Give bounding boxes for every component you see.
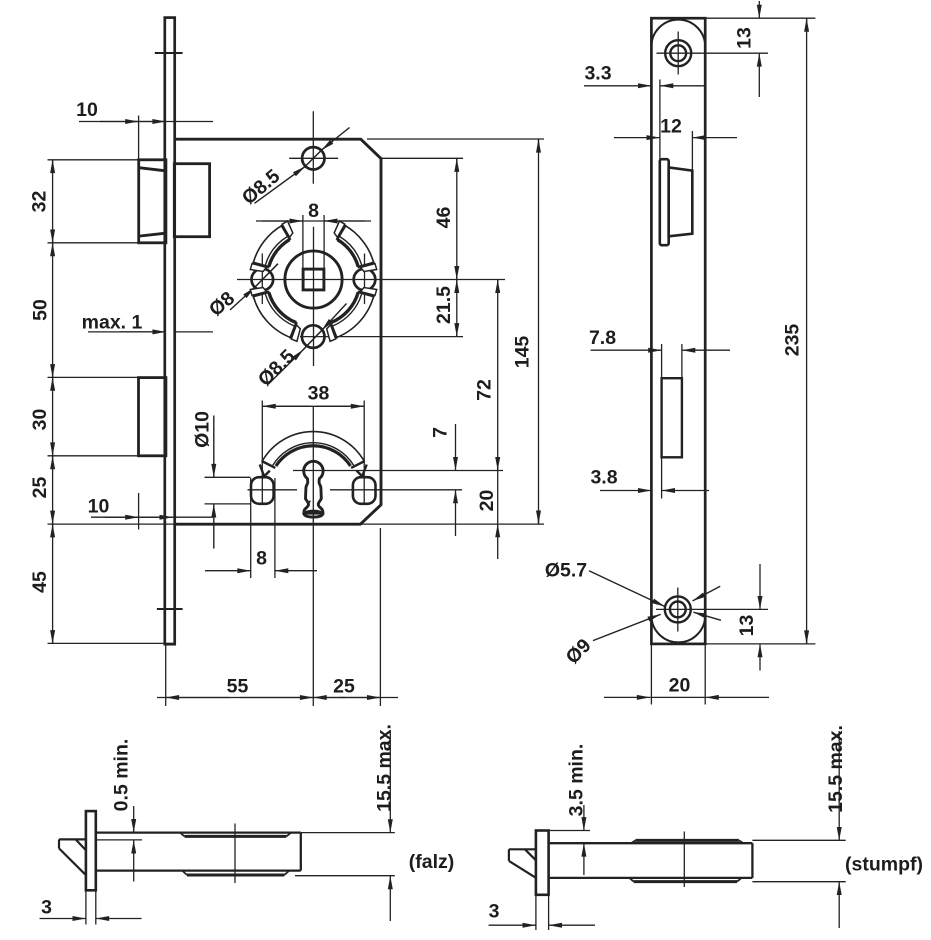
svg-text:3.8: 3.8 <box>590 466 617 488</box>
svg-text:Ø10: Ø10 <box>191 411 213 448</box>
svg-text:55: 55 <box>227 676 249 698</box>
svg-text:10: 10 <box>76 99 98 121</box>
svg-text:3.3: 3.3 <box>584 62 611 84</box>
svg-text:235: 235 <box>781 324 803 357</box>
svg-text:25: 25 <box>29 477 51 499</box>
svg-text:38: 38 <box>308 382 330 404</box>
svg-text:0.5 min.: 0.5 min. <box>110 739 132 812</box>
svg-text:13: 13 <box>736 615 758 637</box>
svg-text:72: 72 <box>473 379 495 401</box>
svg-text:15.5 max.: 15.5 max. <box>825 725 847 813</box>
svg-text:21.5: 21.5 <box>433 286 455 324</box>
svg-text:45: 45 <box>29 571 51 593</box>
svg-text:145: 145 <box>511 336 533 369</box>
svg-text:10: 10 <box>88 495 110 517</box>
svg-text:13: 13 <box>733 27 755 49</box>
svg-text:20: 20 <box>669 674 691 696</box>
svg-text:50: 50 <box>29 299 51 321</box>
svg-text:(falz): (falz) <box>409 851 455 873</box>
svg-text:Ø5.7: Ø5.7 <box>545 559 587 581</box>
svg-text:12: 12 <box>660 115 682 137</box>
svg-text:3: 3 <box>489 900 500 922</box>
svg-text:15.5 max.: 15.5 max. <box>373 724 395 812</box>
svg-text:32: 32 <box>28 191 50 213</box>
svg-text:3: 3 <box>41 896 52 918</box>
svg-text:30: 30 <box>29 409 51 431</box>
svg-text:46: 46 <box>433 207 455 229</box>
svg-text:max. 1: max. 1 <box>82 311 143 333</box>
svg-text:3.5 min.: 3.5 min. <box>565 744 587 817</box>
svg-text:7: 7 <box>429 427 451 438</box>
svg-text:8: 8 <box>308 200 319 222</box>
svg-text:8: 8 <box>256 547 267 569</box>
svg-text:(stumpf): (stumpf) <box>845 853 923 875</box>
svg-text:7.8: 7.8 <box>589 327 616 349</box>
svg-text:20: 20 <box>476 490 498 512</box>
svg-text:25: 25 <box>333 676 355 698</box>
